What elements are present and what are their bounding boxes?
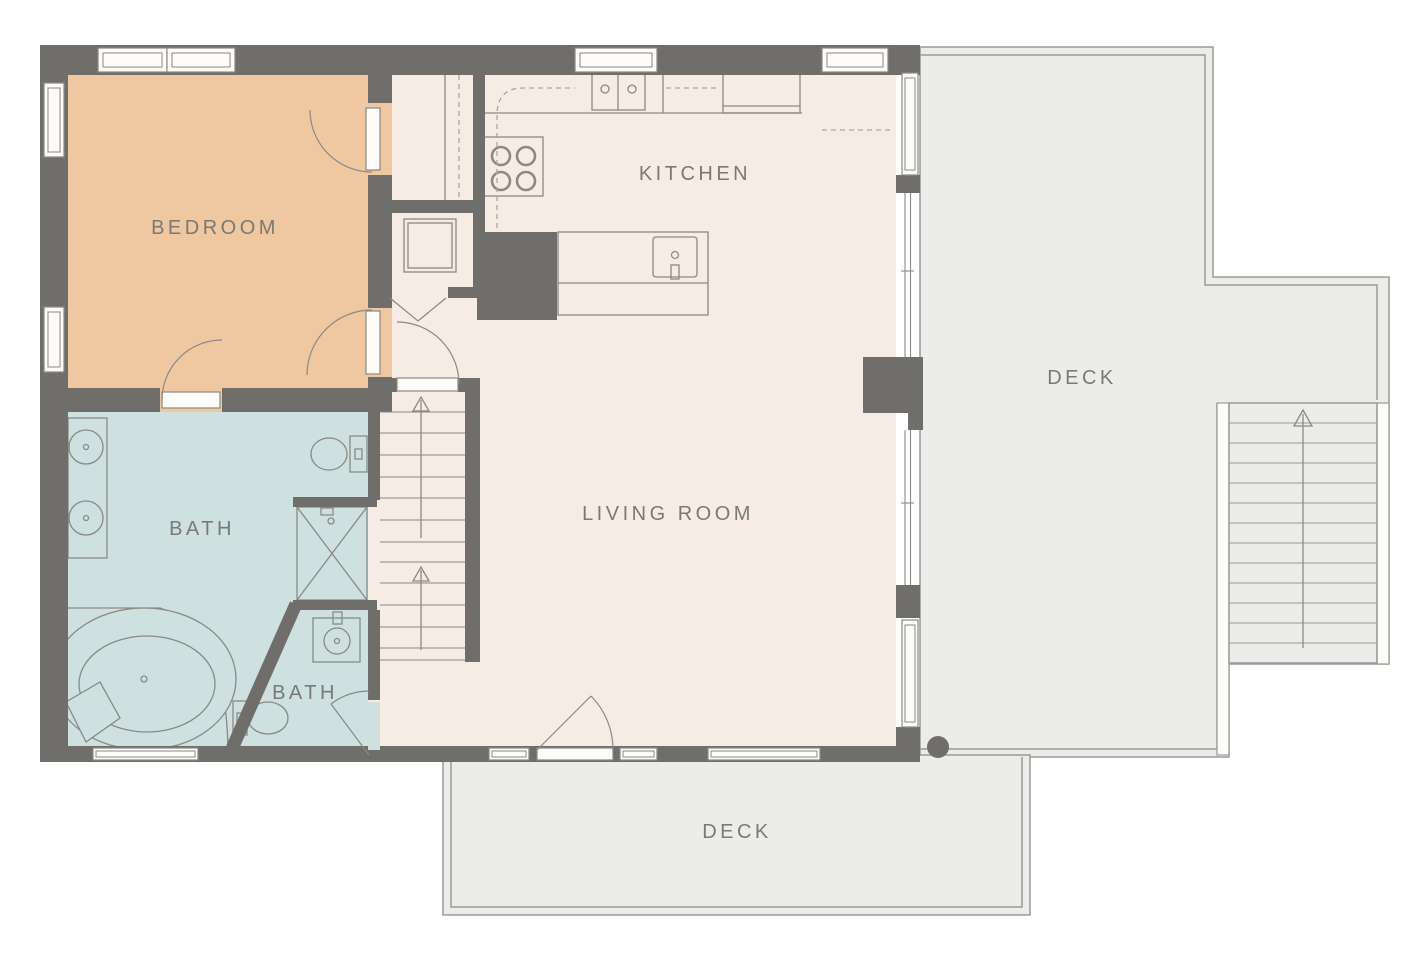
window [902, 73, 918, 175]
fireplace [863, 357, 923, 413]
fireplace-tab [908, 413, 923, 430]
wall-bath-small-right [368, 610, 380, 700]
shower [297, 507, 367, 600]
window [93, 748, 198, 760]
wall-bath-right [368, 412, 380, 500]
toilet [311, 436, 367, 472]
toilet-tank [350, 436, 367, 472]
round-sink [324, 628, 350, 654]
structural-column-icon [927, 736, 949, 758]
window [98, 48, 167, 72]
chimney-block [477, 232, 557, 320]
bedroom-label: BEDROOM [151, 217, 279, 239]
wall-shower-top [293, 497, 377, 507]
wall-bedroom-bottom [68, 388, 392, 412]
living-room-label: LIVING ROOM [582, 503, 754, 525]
floor-plan-svg: BEDROOM KITCHEN BATH BATH LIVING ROOM DE… [0, 0, 1427, 960]
window [44, 83, 64, 157]
island-outline [558, 232, 708, 315]
bath-main-label: BATH [169, 518, 235, 540]
stair-door-jamb [377, 378, 397, 392]
wall-shower-bottom [293, 600, 377, 610]
window [167, 48, 235, 72]
deck-right-platform [920, 47, 1389, 757]
window [902, 620, 918, 727]
window [44, 307, 64, 372]
wall-hall-south [368, 287, 388, 298]
door-leaf [537, 748, 613, 760]
door-leaf [366, 108, 380, 170]
door-opening [368, 702, 380, 750]
door-leaf [162, 392, 220, 408]
deck-bottom-label: DECK [702, 821, 772, 843]
door-leaf [366, 311, 380, 374]
window [620, 748, 657, 760]
wall-right-post [896, 585, 920, 618]
wall-right-post [896, 175, 920, 193]
vanity-sink [69, 430, 103, 464]
deck-stairs-right-rail [1377, 403, 1389, 664]
kitchen-island [558, 232, 708, 315]
toilet-bowl [311, 438, 347, 470]
deck-stairs-left-rail [1217, 403, 1229, 755]
wall-right-corner [896, 727, 920, 762]
door-leaf [397, 378, 458, 391]
deck-right [920, 47, 1389, 757]
window [708, 748, 820, 760]
deck-right-label: DECK [1047, 367, 1117, 389]
window [575, 48, 657, 72]
wall-stair-right [465, 378, 480, 662]
wall-closet-divider [392, 200, 473, 213]
floor-plan-page: BEDROOM KITCHEN BATH BATH LIVING ROOM DE… [0, 0, 1427, 960]
window [489, 748, 529, 760]
kitchen-label: KITCHEN [639, 163, 751, 185]
window [822, 48, 888, 72]
bath-small-label: BATH [272, 682, 338, 704]
vanity-sink [69, 501, 103, 535]
